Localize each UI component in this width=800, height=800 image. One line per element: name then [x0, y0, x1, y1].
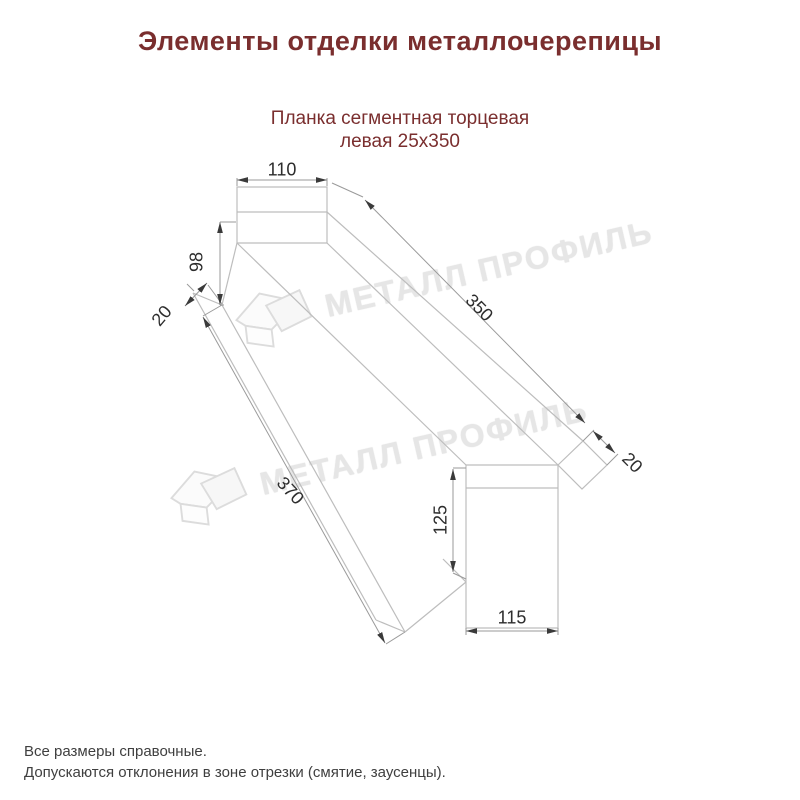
dim-label-125: 125 [431, 505, 452, 535]
dim-label-110: 110 [268, 160, 297, 181]
extension-lines [187, 178, 618, 644]
part-drawing [0, 0, 800, 800]
footer-note-1: Все размеры справочные. [24, 743, 207, 760]
dim-label-98: 98 [187, 252, 208, 272]
page: Элементы отделки металлочерепицы Планка … [0, 0, 800, 800]
footer-note-2: Допускаются отклонения в зоне отрезки (с… [24, 764, 446, 781]
dim-label-115: 115 [498, 608, 527, 629]
